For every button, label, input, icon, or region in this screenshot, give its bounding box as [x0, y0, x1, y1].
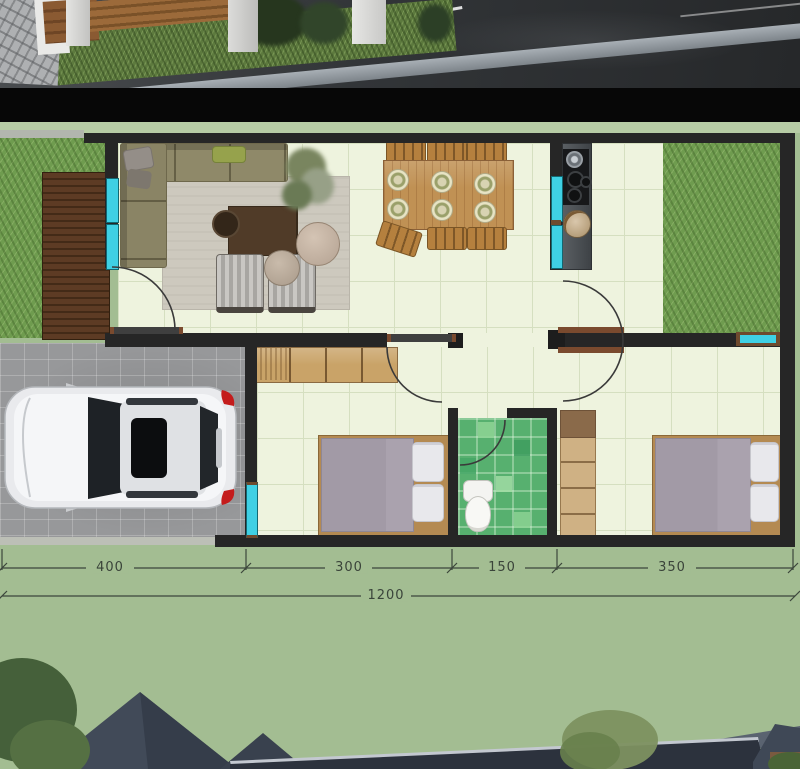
plate-3 — [474, 173, 496, 195]
fence-post — [352, 0, 386, 44]
floor-plan-page: 400 300 150 350 1200 — [0, 0, 800, 769]
bedroom2-pillow-2 — [750, 484, 779, 522]
black-divider-band — [0, 88, 800, 122]
center-tree-canopy — [562, 710, 658, 769]
bedroom2-wardrobe-top — [560, 410, 596, 438]
armchair-1 — [216, 254, 264, 313]
bedroom1-wardrobe-grain — [255, 348, 289, 380]
window-bedroom1 — [246, 482, 258, 538]
carport-pavers — [0, 343, 245, 537]
street-render — [0, 0, 800, 88]
entrance-door-leaf — [110, 327, 183, 334]
wall-middle-left — [105, 333, 387, 347]
center-tree-canopy-2 — [560, 732, 620, 769]
wall-bathroom-right — [547, 408, 557, 537]
floor-hall-patch — [463, 333, 548, 347]
dim-segment-300: 300 — [331, 561, 367, 574]
bedroom1-mattress — [321, 438, 414, 532]
dim-segment-150: 150 — [484, 561, 520, 574]
right-bush — [768, 752, 800, 769]
dim-total-1200: 1200 — [363, 589, 408, 602]
window-living-1 — [106, 178, 119, 223]
plate-1 — [387, 169, 409, 191]
potted-plant — [282, 146, 336, 216]
sofa-pillow-green — [212, 146, 246, 163]
window-living-2 — [106, 224, 119, 270]
shrub-2 — [300, 2, 348, 44]
porch-column-2 — [228, 0, 258, 52]
backyard-lawn — [663, 143, 780, 333]
bedroom2-door-frame-bottom — [558, 347, 624, 353]
burner-3 — [567, 188, 582, 203]
cooktop-pot — [566, 151, 583, 168]
pyramid-roof-left-shade — [140, 692, 237, 769]
pouf-small — [264, 250, 300, 286]
dining-chair-bottom-3 — [467, 227, 507, 250]
window-backyard-glass — [740, 335, 776, 343]
plate-2 — [431, 171, 453, 193]
plate-6 — [474, 201, 496, 223]
bedroom2-door-frame-top — [558, 327, 624, 333]
window-kitchen-1 — [551, 176, 563, 222]
tile-accent-1 — [478, 422, 494, 438]
cloud-3 — [80, 696, 380, 726]
left-tree-canopy-2 — [10, 720, 90, 769]
kitchen-serving-plate — [563, 210, 591, 238]
exterior-render-sky — [0, 608, 800, 769]
dim-segment-350: 350 — [654, 561, 690, 574]
bedroom1-pillow-1 — [412, 442, 444, 482]
dim-segment-400: 400 — [92, 561, 128, 574]
left-tree-canopy — [0, 658, 77, 762]
porch-column-1 — [66, 0, 90, 46]
distant-roof-right — [695, 726, 800, 750]
right-house-roof — [753, 724, 800, 769]
plant-foliage-3 — [282, 180, 312, 210]
wall-top — [84, 133, 795, 143]
wall-bathroom-left — [448, 408, 458, 537]
sofa-pillow-dark — [126, 168, 152, 189]
roofline-group — [0, 658, 800, 769]
pyramid-roof-small — [220, 733, 306, 769]
tile-accent-5 — [460, 458, 476, 474]
tile-accent-4 — [514, 512, 530, 528]
long-roof — [230, 740, 766, 769]
pouf-large — [296, 222, 340, 266]
toilet-bowl — [465, 496, 491, 532]
tile-accent-3 — [496, 476, 512, 492]
cloud-4 — [560, 660, 760, 688]
pyramid-roof-left — [44, 692, 237, 769]
cloud-2 — [300, 634, 580, 678]
long-roof-fascia — [230, 737, 759, 766]
dining-chair-bottom-2 — [427, 227, 467, 250]
bedroom2-pillow-1 — [750, 442, 779, 482]
wood-deck — [42, 172, 110, 340]
window-kitchen-2 — [551, 225, 563, 269]
shrub-3 — [418, 4, 452, 42]
wall-right — [780, 133, 795, 547]
coffee-table-tray — [212, 210, 240, 238]
bedroom2-mattress — [655, 438, 751, 532]
cloud-1 — [50, 648, 290, 682]
burner-2 — [580, 176, 592, 188]
carport-curb — [0, 537, 215, 545]
plate-4 — [387, 198, 409, 220]
right-house-wall — [770, 752, 800, 769]
tile-accent-2 — [514, 440, 530, 456]
bedroom1-door-leaf — [387, 334, 456, 342]
wall-bottom — [215, 535, 795, 547]
bedroom1-pillow-2 — [412, 484, 444, 522]
plate-5 — [431, 199, 453, 221]
plan-top-light-strip — [0, 122, 800, 133]
